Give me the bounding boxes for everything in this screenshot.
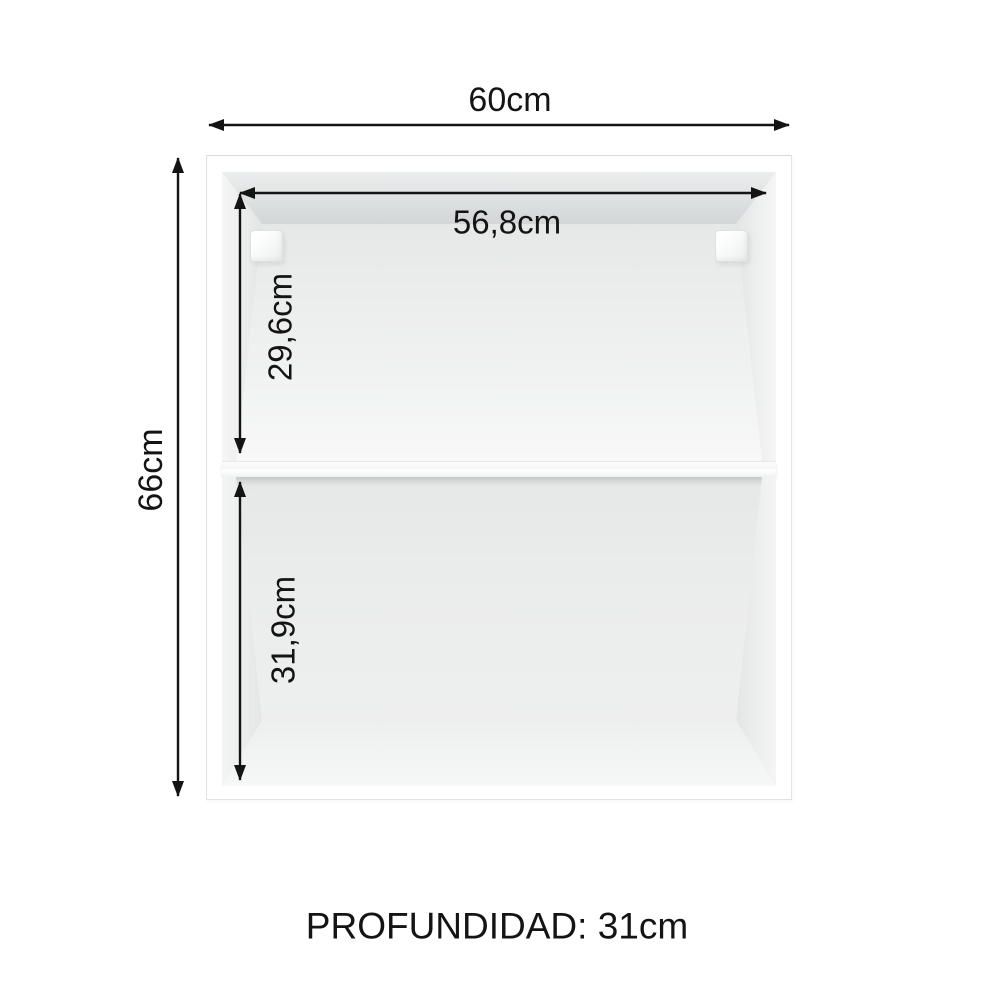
cabinet-body <box>206 155 792 800</box>
mounting-bracket-right <box>715 230 748 262</box>
lower-compartment <box>222 477 776 786</box>
lower-compartment-dimension-label: 31,9cm <box>267 576 300 684</box>
inner-width-dimension-label: 56,8cm <box>453 206 561 239</box>
upper-compartment-dimension-label: 29,6cm <box>264 273 297 381</box>
interior-floor <box>222 720 776 786</box>
shelf-underside-shadow <box>222 477 776 486</box>
cabinet-dimension-diagram: 60cm 66cm 56,8cm 29,6cm 31,9cm PROFUNDID… <box>0 0 1000 1000</box>
cabinet-interior <box>222 172 776 786</box>
depth-label: PROFUNDIDAD: 31cm <box>306 908 688 945</box>
shelf <box>222 461 776 477</box>
width-dimension-label: 60cm <box>468 83 551 117</box>
mounting-bracket-left <box>250 230 283 262</box>
height-dimension-label: 66cm <box>134 428 168 511</box>
